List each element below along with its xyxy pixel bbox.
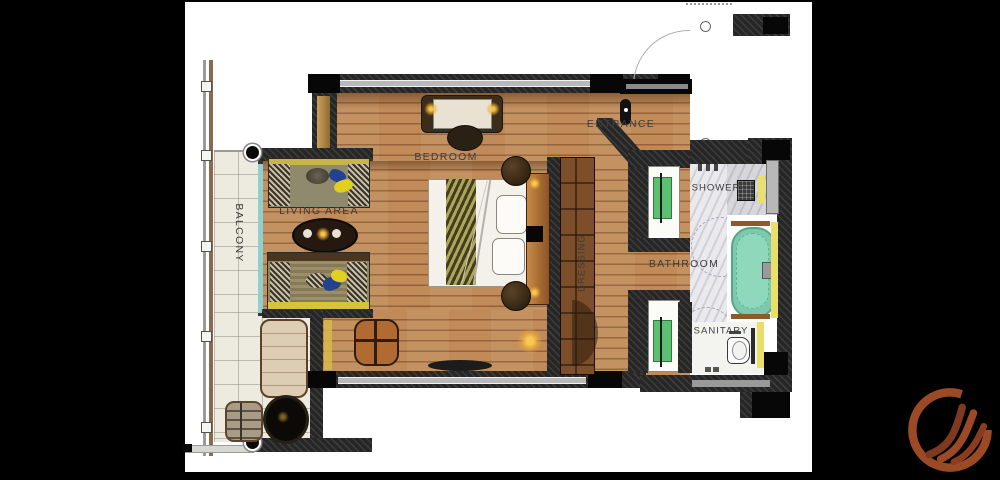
entrance-door-leaf-inner bbox=[626, 84, 688, 89]
sofa-arm bbox=[270, 262, 290, 303]
wall-column bbox=[308, 74, 340, 93]
sun-lounger bbox=[260, 319, 308, 398]
shower-head-marks bbox=[698, 164, 702, 171]
bathtub-ledge bbox=[731, 314, 770, 319]
sofa bbox=[268, 158, 370, 208]
sofa bbox=[267, 252, 370, 310]
room-label-dressing: DRESSING bbox=[577, 234, 588, 292]
headboard-console bbox=[526, 226, 543, 242]
vanity-sink bbox=[653, 320, 672, 362]
armchair-line bbox=[356, 339, 397, 342]
wall-vanity-left2 bbox=[628, 300, 648, 373]
wall-shadow bbox=[337, 93, 690, 109]
room-label-sanitary: SANITARY bbox=[694, 326, 749, 337]
armchair bbox=[354, 319, 399, 366]
room-label-bathroom: BATHROOM bbox=[649, 258, 719, 270]
wall-pillar-gray bbox=[766, 160, 779, 214]
railing-post bbox=[201, 422, 212, 433]
room-label-entrance: ENTRANCE bbox=[587, 118, 655, 130]
wall-pivot-column bbox=[246, 146, 259, 159]
coffee-table bbox=[292, 218, 358, 253]
nightstand bbox=[501, 156, 531, 186]
wall-balcony-bottom bbox=[252, 438, 372, 452]
flame-crest-logo bbox=[903, 383, 997, 477]
room-label-living-area: LIVING AREA bbox=[279, 205, 359, 217]
desk-lamp bbox=[486, 102, 500, 116]
balcony-sliding-glass bbox=[258, 161, 263, 316]
floor-marks bbox=[705, 367, 711, 372]
basket-chair bbox=[225, 401, 263, 442]
balcony-bottom-edge bbox=[185, 445, 254, 453]
balcony-railing-outer bbox=[203, 60, 206, 456]
room-label-balcony: BALCONY bbox=[233, 203, 245, 262]
curtain-strip bbox=[317, 96, 330, 151]
toilet-seat bbox=[732, 341, 747, 360]
wall-column bbox=[308, 371, 336, 388]
table-plate bbox=[332, 229, 341, 238]
floor-marks bbox=[713, 367, 719, 372]
shower-head-marks bbox=[714, 164, 718, 171]
wall-niche bbox=[692, 380, 770, 387]
vanity-sink bbox=[653, 177, 672, 219]
balcony-railing-inner bbox=[209, 60, 213, 456]
railing-post bbox=[201, 241, 212, 252]
armchair-line bbox=[374, 321, 377, 364]
railing-post bbox=[201, 331, 212, 342]
room-label-bedroom: BEDROOM bbox=[414, 151, 477, 163]
table-candle-glow bbox=[316, 227, 330, 241]
light-strip bbox=[771, 222, 778, 318]
table-plate bbox=[303, 229, 312, 238]
side-table-glow bbox=[277, 411, 289, 423]
nightstand bbox=[501, 281, 531, 311]
light-strip bbox=[757, 322, 764, 368]
wall-vanity-left bbox=[628, 168, 648, 240]
railing-post bbox=[201, 81, 212, 92]
sofa-back-line bbox=[268, 253, 369, 261]
wall-sanitary-left bbox=[678, 302, 692, 373]
desk-lamp bbox=[424, 102, 438, 116]
bathtub-ledge bbox=[731, 221, 770, 226]
wall-stub bbox=[740, 392, 752, 418]
window-band-bottom bbox=[338, 377, 586, 384]
sofa-arm bbox=[347, 262, 367, 303]
vanity-rail bbox=[660, 317, 662, 367]
desk-chair bbox=[447, 125, 483, 151]
sofa-front-line bbox=[268, 302, 369, 309]
pivot-door-dot bbox=[624, 108, 628, 112]
wall-vanity-mid bbox=[628, 238, 690, 252]
headboard-light bbox=[528, 177, 541, 190]
bed-runner bbox=[446, 179, 476, 285]
wall-column bbox=[764, 352, 788, 376]
wall-column bbox=[590, 74, 623, 93]
entrance-dashline bbox=[686, 3, 732, 5]
light-strip bbox=[758, 176, 765, 204]
side-table bbox=[263, 395, 309, 444]
bed-pillow bbox=[492, 238, 525, 275]
flame-logo-icon bbox=[903, 383, 997, 477]
shower-head-marks bbox=[706, 164, 710, 171]
vanity-rail bbox=[660, 173, 662, 223]
railing-end-cap bbox=[183, 444, 192, 452]
railing-post bbox=[201, 150, 212, 161]
window-bench bbox=[428, 360, 492, 371]
sofa-cushion bbox=[306, 168, 329, 184]
room-label-shower: SHOWER bbox=[692, 183, 741, 194]
toilet-cistern-line bbox=[751, 328, 755, 364]
curtain-strip bbox=[324, 320, 332, 370]
sofa-arm bbox=[269, 164, 290, 206]
wall-column bbox=[763, 17, 788, 34]
door-hinge bbox=[700, 21, 711, 32]
bed-pillow bbox=[496, 195, 527, 234]
wall-column bbox=[752, 392, 790, 418]
floor-plan-stage: BALCONY LIVING AREA BEDROOM ENTRANCE DRE… bbox=[0, 0, 1000, 480]
floor-lamp-glow bbox=[517, 328, 543, 354]
